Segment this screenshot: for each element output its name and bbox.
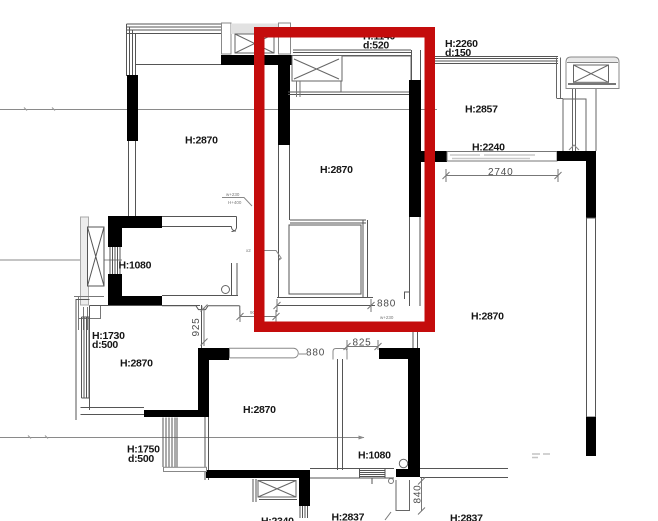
svg-text:H:2340: H:2340 bbox=[261, 516, 294, 521]
svg-text:d:500: d:500 bbox=[92, 339, 118, 351]
svg-text:880: 880 bbox=[377, 299, 396, 310]
svg-text:H:2857: H:2857 bbox=[465, 104, 498, 116]
svg-text:2740: 2740 bbox=[488, 167, 513, 178]
svg-text:925: 925 bbox=[191, 317, 202, 336]
svg-text:H:2870: H:2870 bbox=[185, 135, 218, 147]
svg-text:H:1080: H:1080 bbox=[358, 450, 391, 462]
svg-text:H:2870: H:2870 bbox=[243, 404, 276, 416]
svg-text:880: 880 bbox=[306, 348, 325, 359]
svg-text:H:2870: H:2870 bbox=[320, 164, 353, 176]
svg-text:840: 840 bbox=[413, 484, 424, 503]
svg-text:H:2870: H:2870 bbox=[471, 311, 504, 323]
svg-text:H:2240: H:2240 bbox=[472, 142, 505, 154]
svg-text:w+230: w+230 bbox=[380, 315, 394, 320]
svg-text:825: 825 bbox=[352, 338, 371, 349]
svg-text:d:500: d:500 bbox=[128, 453, 154, 465]
svg-text:H:1080: H:1080 bbox=[119, 260, 152, 272]
svg-text:H:2870: H:2870 bbox=[120, 358, 153, 370]
svg-text:H:2837: H:2837 bbox=[450, 513, 483, 521]
svg-text:d:520: d:520 bbox=[363, 40, 389, 52]
svg-text:H:2837: H:2837 bbox=[332, 512, 365, 521]
svg-text:x2: x2 bbox=[246, 248, 251, 253]
svg-text:w+230: w+230 bbox=[226, 192, 240, 197]
svg-text:d:150: d:150 bbox=[445, 47, 471, 59]
svg-text:H+400: H+400 bbox=[228, 200, 242, 205]
